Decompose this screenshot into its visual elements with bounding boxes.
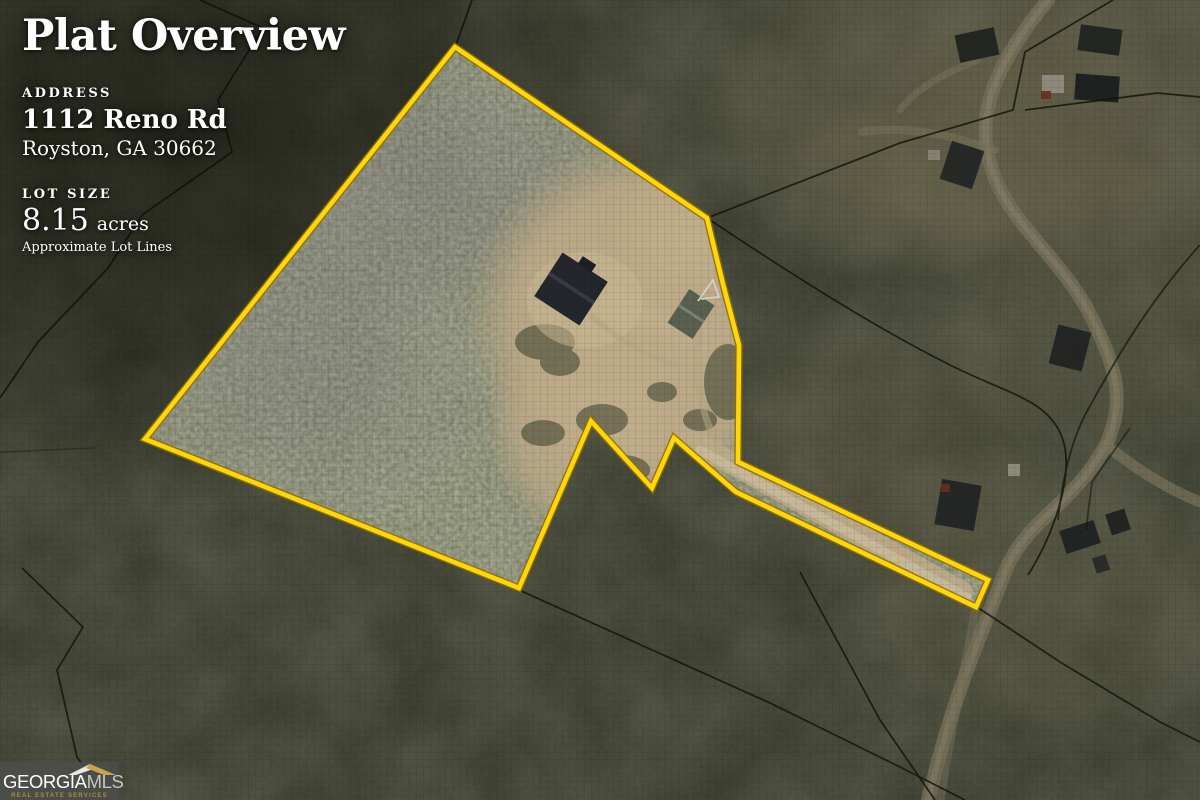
- page-title: Plat Overview: [22, 14, 345, 59]
- lot-size: 8.15 acres: [22, 206, 345, 236]
- lot-size-label: LOT SIZE: [22, 188, 345, 201]
- address-label: ADDRESS: [22, 87, 345, 100]
- lot-size-value: 8.15: [22, 206, 89, 236]
- info-panel: Plat Overview ADDRESS 1112 Reno Rd Royst…: [22, 14, 345, 255]
- lot-size-unit: acres: [97, 213, 149, 235]
- address-line1: 1112 Reno Rd: [22, 106, 345, 135]
- logo-wordmark: GEORGIAMLS: [3, 773, 123, 792]
- georgiamls-logo: GEORGIAMLS REAL ESTATE SERVICES: [0, 762, 119, 800]
- address-line2: Royston, GA 30662: [22, 137, 345, 160]
- brand-secondary: MLS: [87, 773, 124, 792]
- brand-primary: GEORGIA: [3, 773, 87, 792]
- plat-overview-page: Plat Overview ADDRESS 1112 Reno Rd Royst…: [0, 0, 1200, 800]
- logo-tagline: REAL ESTATE SERVICES: [0, 793, 119, 799]
- lot-size-note: Approximate Lot Lines: [22, 240, 345, 255]
